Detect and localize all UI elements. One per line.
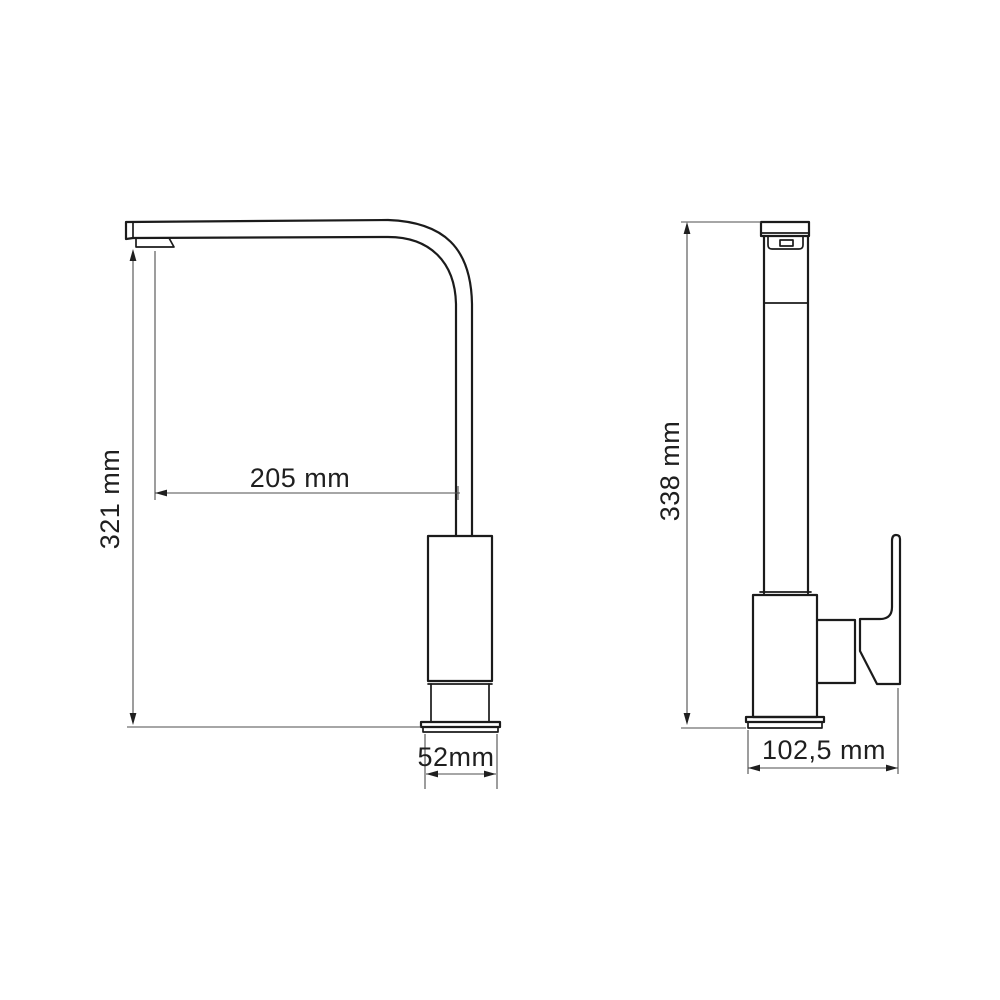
arrow-left-icon: [155, 490, 167, 497]
dimension-spout-reach: 205 mm: [155, 251, 460, 500]
handle-block: [817, 620, 855, 683]
faucet-body-front: [753, 595, 817, 717]
dimension-base-width: 52mm: [417, 734, 497, 789]
column: [764, 236, 808, 593]
faucet-neck: [431, 684, 489, 722]
aerator-front: [768, 236, 803, 249]
handle-lever: [860, 535, 900, 684]
aerator: [136, 238, 174, 247]
dimension-label-321: 321 mm: [95, 449, 125, 550]
arrow-up-icon: [684, 222, 691, 234]
drawing-canvas: 321 mm 205 mm 52mm 338 mm: [0, 0, 1000, 1000]
dimension-label-102-5: 102,5 mm: [762, 735, 886, 765]
dimension-front-width: 102,5 mm: [748, 688, 898, 774]
faucet-body: [428, 536, 492, 681]
spout-cap: [761, 222, 809, 236]
arrow-right-icon: [886, 765, 898, 772]
arrow-down-icon: [130, 713, 137, 725]
arrow-up-icon: [130, 249, 137, 261]
arrow-down-icon: [684, 713, 691, 725]
dimension-label-338: 338 mm: [655, 421, 685, 522]
dimension-front-height: 338 mm: [655, 222, 761, 728]
aerator-notch: [780, 240, 793, 246]
faucet-technical-drawing: 321 mm 205 mm 52mm 338 mm: [0, 0, 1000, 1000]
dimension-label-205: 205 mm: [250, 463, 351, 493]
dimension-label-52: 52mm: [417, 742, 494, 772]
front-view: [746, 222, 900, 728]
base-plate-lower: [423, 727, 498, 732]
arrow-left-icon: [748, 765, 760, 772]
